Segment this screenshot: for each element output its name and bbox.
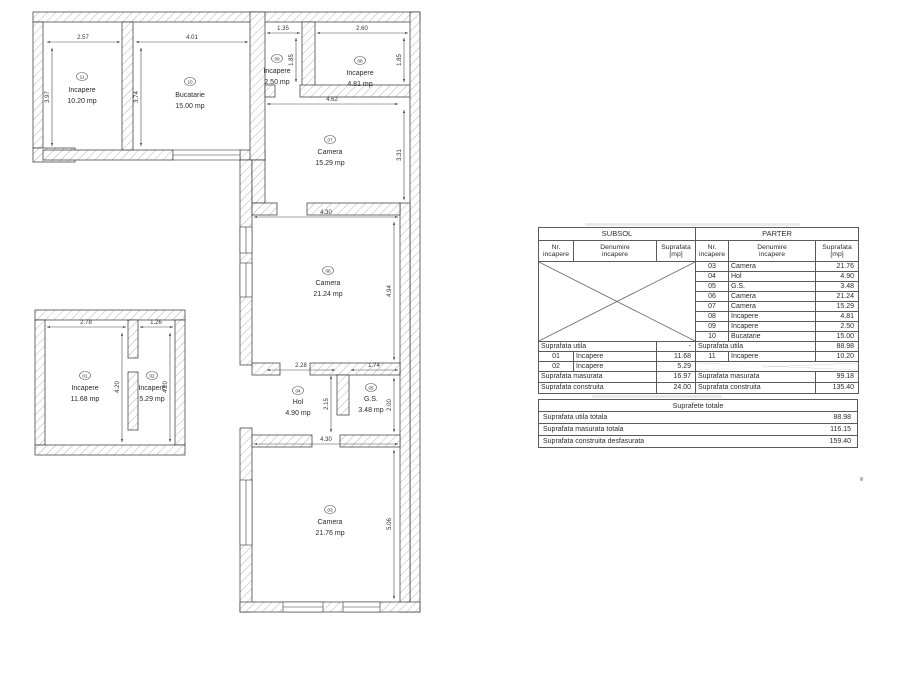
table-cell: Incapere [729, 312, 816, 322]
svg-text:Incapere: Incapere [263, 68, 290, 75]
totals-value: 88.98 [833, 414, 851, 421]
dim-label: 2.28 [295, 363, 307, 369]
table-cell: Incapere [574, 362, 657, 372]
table-cell: Incapere [729, 322, 816, 332]
window-icon [173, 150, 240, 160]
dim-label: 5.06 [387, 518, 393, 530]
table-cell: Camera [729, 302, 816, 312]
dim-label: 2.57 [77, 35, 89, 41]
table-title-row: SUBSOL PARTER [539, 228, 859, 241]
table-cell: 135.40 [816, 383, 859, 394]
svg-text:Incapere: Incapere [71, 385, 98, 392]
table-cell: G.S. [729, 282, 816, 292]
table-cell: Suprafata utila [539, 342, 657, 352]
svg-text:G.S.: G.S. [364, 396, 378, 403]
table-cell: 5.29 [657, 362, 696, 372]
table-cell: Suprafata construita [696, 383, 816, 394]
cross-out-icon [696, 362, 858, 371]
scan-dot [860, 477, 863, 481]
svg-text:15.29 mp: 15.29 mp [315, 160, 344, 167]
svg-text:5.29 mp: 5.29 mp [139, 396, 164, 403]
room-label-11: 11 Incapere 10.20 mp [67, 73, 96, 106]
table-cell: 10 [696, 332, 729, 342]
window-icon [283, 602, 323, 612]
dim-label: 1.74 [368, 363, 380, 369]
table-cell: 09 [696, 322, 729, 332]
svg-text:3.48 mp: 3.48 mp [358, 407, 383, 414]
svg-text:Incapere: Incapere [68, 87, 95, 94]
scan-smudge [585, 223, 800, 226]
totals-title: Suprafete totale [539, 400, 858, 412]
table-cell: 01 [539, 352, 574, 362]
svg-text:Bucatarie: Bucatarie [175, 92, 205, 99]
svg-text:04: 04 [295, 388, 301, 393]
svg-text:15.00 mp: 15.00 mp [175, 103, 204, 110]
table-cell: Hol [729, 272, 816, 282]
table-cell: Suprafata masurata [539, 372, 657, 383]
svg-text:Camera: Camera [316, 280, 341, 287]
table-cell: 16.97 [657, 372, 696, 383]
dim-label: 2.60 [356, 26, 368, 32]
col-header-denumire: Denumireincapere [729, 241, 816, 262]
totals-row: Suprafata utila totala 88.98 [539, 412, 858, 424]
totals-label: Suprafata construita desfasurata [543, 438, 644, 445]
svg-text:02: 02 [149, 373, 155, 378]
table-cell: Suprafata construita desfasurata 159.40 [539, 436, 858, 448]
svg-text:4.90 mp: 4.90 mp [285, 410, 310, 417]
dim-label: 1.35 [277, 26, 289, 32]
svg-text:Camera: Camera [318, 149, 343, 156]
svg-text:09: 09 [274, 56, 280, 61]
table-cell: Camera [729, 292, 816, 302]
col-header-suprafata: Suprafata[mp] [657, 241, 696, 262]
col-header-suprafata: Suprafata[mp] [816, 241, 859, 262]
table-cell: 04 [696, 272, 729, 282]
table-row: 02 Incapere 5.29 [539, 362, 859, 372]
dim-label: 1.85 [397, 54, 403, 66]
svg-text:Incapere: Incapere [138, 385, 165, 392]
totals-label: Suprafata utila totala [543, 414, 607, 421]
room-label-03: 03 Camera 21.76 mp [315, 506, 344, 538]
subsol-empty-crossed-cell [539, 262, 696, 342]
table-cell: 3.48 [816, 282, 859, 292]
dim-label: 2.00 [387, 399, 393, 411]
area-table: SUBSOL PARTER Nr.incapere Denumireincape… [538, 227, 859, 394]
svg-text:08: 08 [357, 58, 363, 63]
table-cell: 07 [696, 302, 729, 312]
dim-label: 4.94 [387, 285, 393, 297]
table-cell: 24.00 [657, 383, 696, 394]
svg-text:10: 10 [187, 79, 193, 84]
totals-label: Suprafata masurata totala [543, 426, 624, 433]
dim-label: 3.97 [45, 91, 51, 103]
table-cell: 21.24 [816, 292, 859, 302]
svg-text:05: 05 [368, 385, 374, 390]
totals-header-row: Suprafete totale [539, 400, 858, 412]
table-header-row: Nr.incapere Denumireincapere Suprafata[m… [539, 241, 859, 262]
dim-label: 3.31 [397, 149, 403, 161]
scan-smudge [592, 395, 722, 398]
svg-text:Hol: Hol [293, 399, 304, 406]
parter-crossed-cell [696, 362, 859, 372]
dim-label: 4.20 [115, 381, 121, 393]
window-icon [240, 263, 252, 297]
dim-label: 1.26 [150, 320, 162, 326]
svg-text:21.24 mp: 21.24 mp [313, 291, 342, 298]
dim-label: 3.74 [134, 91, 140, 103]
table-cell: Suprafata masurata [696, 372, 816, 383]
svg-text:11.68 mp: 11.68 mp [71, 396, 100, 403]
utila-row: Suprafata utila - Suprafata utila 88.98 [539, 342, 859, 352]
room-label-09: 09 Incapere 2.50 mp [263, 55, 290, 87]
table-cell: Incapere [729, 352, 816, 362]
table-cell: Suprafata utila [696, 342, 816, 352]
table-cell: - [657, 342, 696, 352]
room-label-01: 01 Incapere 11.68 mp [71, 372, 100, 404]
col-header-nr: Nr.incapere [539, 241, 574, 262]
svg-text:11: 11 [80, 74, 85, 79]
svg-text:10.20 mp: 10.20 mp [67, 98, 96, 105]
cross-out-icon [539, 262, 695, 341]
table-cell: 06 [696, 292, 729, 302]
totals-row: Suprafata masurata totala 116.15 [539, 424, 858, 436]
totals-value: 116.15 [830, 426, 851, 433]
parter-table-title: PARTER [696, 228, 859, 241]
dim-label: 2.78 [80, 320, 92, 326]
subsol-table-title: SUBSOL [539, 228, 696, 241]
table-cell: 2.50 [816, 322, 859, 332]
table-cell: 11.68 [657, 352, 696, 362]
dim-label: 4.01 [186, 35, 198, 41]
room-label-05: 05 G.S. 3.48 mp [358, 384, 383, 415]
table-cell: 11 [696, 352, 729, 362]
table-cell: 21.76 [816, 262, 859, 272]
table-cell: 08 [696, 312, 729, 322]
room-labels: 11 Incapere 10.20 mp 10 Bucatarie 15.00 … [67, 55, 383, 538]
dim-label: 4.30 [320, 437, 332, 443]
table-cell: Bucatarie [729, 332, 816, 342]
table-cell: Suprafata construita [539, 383, 657, 394]
table-cell: 4.81 [816, 312, 859, 322]
floor-plan-drawing: 2.57 4.01 1.35 2.60 4.62 4.30 2.28 1.74 … [0, 0, 540, 680]
table-cell: 99.18 [816, 372, 859, 383]
table-cell: 03 [696, 262, 729, 272]
table-cell: 4.90 [816, 272, 859, 282]
table-cell: 88.98 [816, 342, 859, 352]
window-icon [240, 480, 252, 545]
svg-text:01: 01 [82, 373, 88, 378]
table-cell: Camera [729, 262, 816, 272]
svg-text:Incapere: Incapere [346, 70, 373, 77]
col-header-denumire: Denumireincapere [574, 241, 657, 262]
room-label-08: 08 Incapere 4.81 mp [346, 57, 373, 89]
table-row: 01 Incapere 11.68 11 Incapere 10.20 [539, 352, 859, 362]
dim-label: 4.30 [320, 210, 332, 216]
col-header-nr: Nr.incapere [696, 241, 729, 262]
room-label-10: 10 Bucatarie 15.00 mp [175, 78, 205, 111]
totals-value: 159.40 [830, 438, 851, 445]
table-row: 03 Camera 21.76 [539, 262, 859, 272]
totals-table: Suprafete totale Suprafata utila totala … [538, 399, 858, 448]
table-cell: 15.29 [816, 302, 859, 312]
construita-row: Suprafata construita 24.00 Suprafata con… [539, 383, 859, 394]
window-icon [240, 227, 252, 253]
table-cell: Suprafata masurata totala 116.15 [539, 424, 858, 436]
svg-text:Camera: Camera [318, 519, 343, 526]
room-label-06: 06 Camera 21.24 mp [313, 267, 342, 299]
table-cell: 02 [539, 362, 574, 372]
svg-text:03: 03 [327, 507, 333, 512]
table-cell: 10.20 [816, 352, 859, 362]
masurata-row: Suprafata masurata 16.97 Suprafata masur… [539, 372, 859, 383]
svg-text:06: 06 [325, 268, 331, 273]
svg-text:2.50 mp: 2.50 mp [264, 79, 289, 86]
totals-row: Suprafata construita desfasurata 159.40 [539, 436, 858, 448]
floor-plan-sheet: 2.57 4.01 1.35 2.60 4.62 4.30 2.28 1.74 … [0, 0, 902, 680]
dim-label: 2.15 [324, 398, 330, 410]
dim-label: 1.85 [289, 54, 295, 66]
svg-text:21.76 mp: 21.76 mp [315, 530, 344, 537]
room-label-04: 04 Hol 4.90 mp [285, 387, 310, 418]
room-label-02: 02 Incapere 5.29 mp [138, 372, 165, 404]
table-cell: Incapere [574, 352, 657, 362]
svg-text:4.81 mp: 4.81 mp [347, 81, 372, 88]
room-label-07: 07 Camera 15.29 mp [315, 136, 344, 168]
dim-label: 4.62 [326, 97, 338, 103]
table-cell: Suprafata utila totala 88.98 [539, 412, 858, 424]
svg-text:07: 07 [327, 137, 333, 142]
table-cell: 15.00 [816, 332, 859, 342]
table-cell: 05 [696, 282, 729, 292]
window-icon [343, 602, 380, 612]
